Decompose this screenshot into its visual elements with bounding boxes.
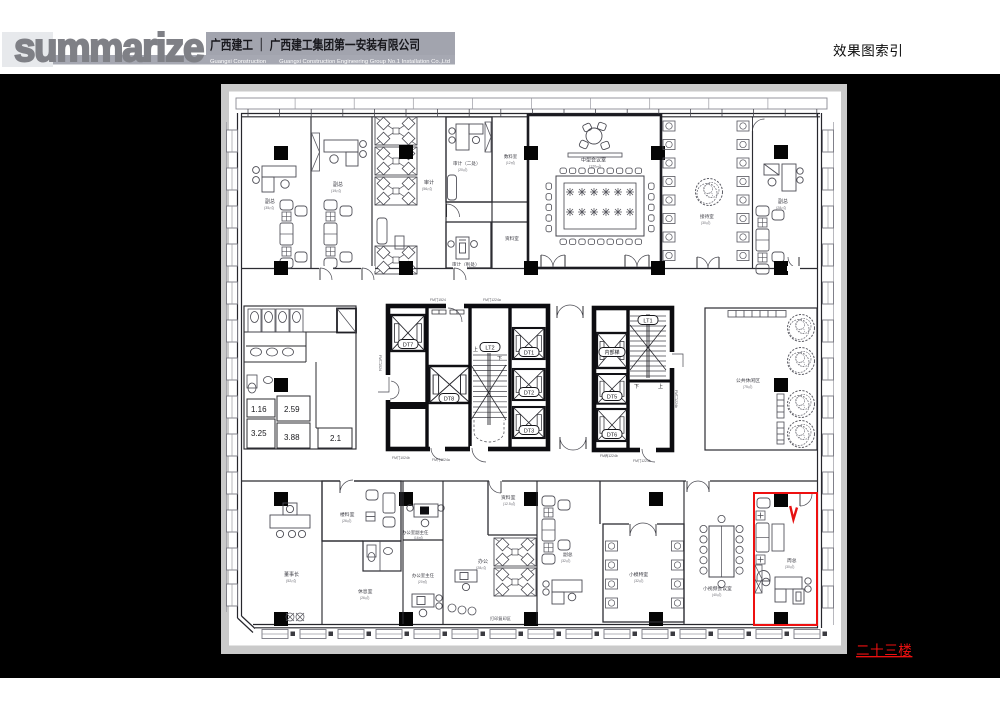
svg-text:副总: 副总 [778,198,788,205]
svg-text:效果图索引: 效果图索引 [833,44,904,59]
svg-text:1.16: 1.16 [251,405,267,414]
svg-text:下: 下 [497,356,502,362]
svg-text:Guangxi Construction Gu: Guangxi Construction Guangxi Constructio… [210,59,450,65]
svg-text:上: 上 [658,383,663,390]
svg-text:公共休闲区: 公共休闲区 [736,377,760,384]
svg-text:(20㎡): (20㎡) [458,167,467,172]
svg-text:DT1: DT1 [524,351,535,357]
svg-text:(32㎡): (32㎡) [561,558,570,563]
svg-text:副总: 副总 [333,181,343,188]
svg-text:FM门1524: FM门1524 [378,355,382,371]
svg-text:休息室: 休息室 [358,588,373,595]
svg-text:(56㎡): (56㎡) [422,186,432,191]
svg-text:(26㎡): (26㎡) [342,518,351,523]
svg-text:下: 下 [634,384,639,390]
svg-text:接待室: 接待室 [700,213,714,220]
svg-text:LT2: LT2 [485,346,494,352]
svg-text:内部梯: 内部梯 [604,349,619,356]
svg-text:DT7: DT7 [403,343,414,349]
svg-text:summarize: summarize [14,26,203,70]
svg-text:DT2: DT2 [524,391,535,397]
svg-text:数料室: 数料室 [504,153,518,160]
svg-text:(12.5㎡): (12.5㎡) [503,501,515,506]
svg-text:办公室主任: 办公室主任 [412,572,435,579]
svg-text:(40㎡): (40㎡) [712,592,721,597]
svg-text:打印复印区: 打印复印区 [490,615,511,622]
svg-text:DT3: DT3 [524,429,535,435]
svg-text:办公室副主任: 办公室副主任 [402,529,429,536]
svg-text:广西建工 ｜ 广西建工集团第一安装有限公司: 广西建工 ｜ 广西建工集团第一安装有限公司 [210,38,420,53]
svg-text:中型会议室: 中型会议室 [581,157,606,164]
svg-text:(12㎡): (12㎡) [506,160,515,165]
svg-text:FM丙1224b: FM丙1224b [600,454,618,458]
svg-text:楼料室: 楼料室 [340,511,355,518]
svg-text:小模特室: 小模特室 [629,571,648,578]
svg-text:FM门1224b: FM门1224b [674,390,678,408]
svg-text:二十三楼: 二十三楼 [856,643,912,658]
svg-text:FM门1224b: FM门1224b [633,458,651,463]
svg-text:LT1: LT1 [643,319,652,325]
svg-text:FM门1224a: FM门1224a [483,297,501,302]
svg-text:上: 上 [473,346,478,353]
svg-text:(20㎡): (20㎡) [418,579,427,584]
svg-text:办公: 办公 [478,558,488,565]
svg-text:审计: 审计 [424,179,434,186]
svg-text:3.25: 3.25 [251,429,267,438]
svg-text:(32㎡): (32㎡) [634,578,643,583]
svg-text:2.1: 2.1 [330,434,342,443]
svg-text:小视频会议室: 小视频会议室 [703,585,732,592]
svg-text:(19㎡): (19㎡) [331,188,341,193]
svg-text:(52㎡): (52㎡) [286,578,296,583]
svg-text:DT6: DT6 [607,433,618,439]
svg-text:(16㎡): (16㎡) [414,535,423,540]
svg-text:董事长: 董事长 [284,571,299,578]
svg-text:副总: 副总 [265,198,275,205]
svg-text:FM门1024a: FM门1024a [432,457,450,462]
svg-text:DT5: DT5 [607,395,618,401]
svg-text:(28㎡): (28㎡) [476,565,486,570]
svg-text:(35㎡): (35㎡) [264,205,274,210]
svg-text:3.88: 3.88 [284,433,300,442]
svg-text:2.59: 2.59 [284,405,300,414]
svg-text:(30㎡): (30㎡) [701,220,710,225]
svg-text:副总: 副总 [563,551,573,558]
svg-text:(28㎡): (28㎡) [776,205,786,210]
svg-text:审计（二处）: 审计（二处） [453,160,481,167]
svg-text:资料室: 资料室 [505,235,519,242]
svg-text:(30㎡): (30㎡) [785,564,794,569]
svg-text:FM门1524: FM门1524 [430,297,446,302]
svg-text:(75㎡): (75㎡) [743,384,752,389]
svg-text:周总: 周总 [787,557,797,564]
svg-text:资料室: 资料室 [501,494,516,501]
svg-text:(26㎡): (26㎡) [360,595,369,600]
svg-text:DT8: DT8 [444,397,455,403]
svg-text:FM门1024b: FM门1024b [392,455,410,460]
